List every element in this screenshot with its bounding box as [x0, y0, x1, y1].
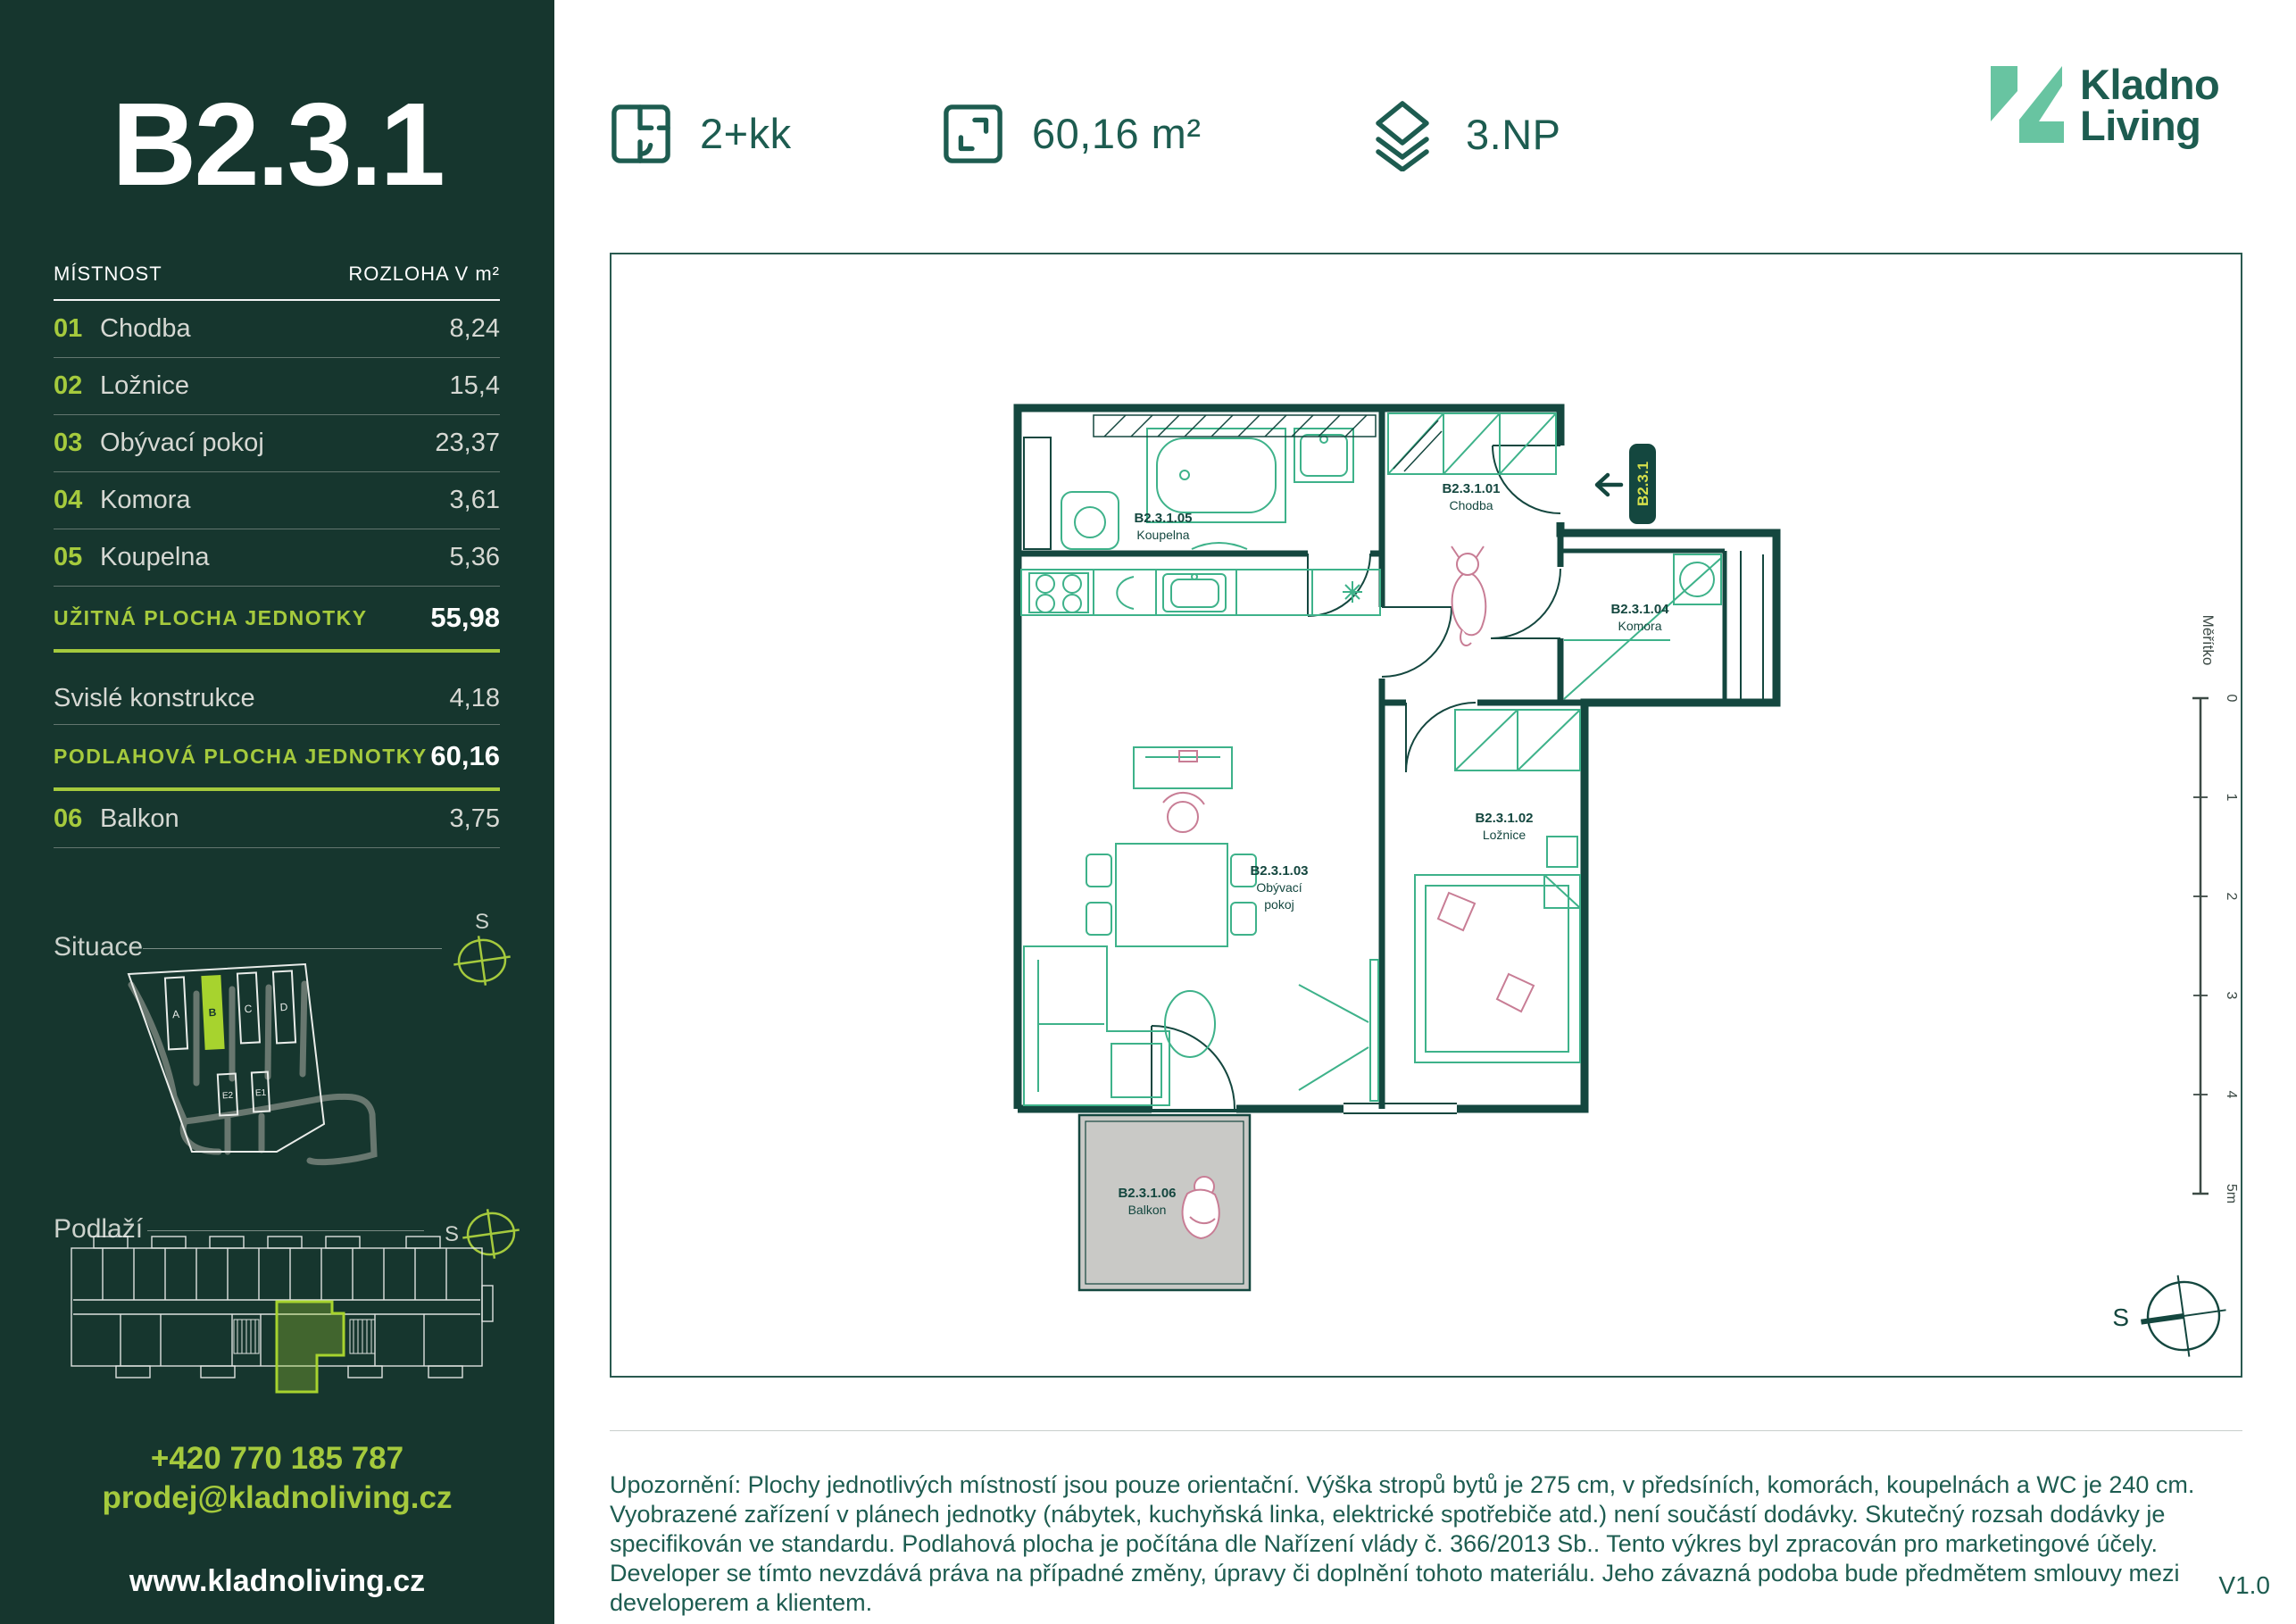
floorplan-canvas: B2.3.1.05 Koupelna B2.3.1.01 Chodba B2.3… [610, 253, 2242, 1378]
room-name: Ložnice [100, 371, 189, 401]
entrance-arrow-icon [1597, 475, 1621, 495]
table-row: 03 Obývací pokoj 23,37 [54, 415, 500, 472]
room-number: 05 [54, 543, 100, 572]
interior-walls [1018, 408, 1776, 1109]
phone-link[interactable]: +420 770 185 787 [0, 1439, 554, 1478]
room-label-name: pokoj [1264, 897, 1294, 912]
scale-ruler [2192, 698, 2209, 1194]
floor-area-label: PODLAHOVÁ PLOCHA JEDNOTKY [54, 745, 428, 769]
floor-area-value: 60,16 [430, 740, 500, 772]
compass-letter: S [475, 910, 489, 934]
room-label-code: B2.3.1.02 [1475, 811, 1533, 826]
unit-title: B2.3.1 [0, 86, 554, 204]
room-label-code: B2.3.1.04 [1610, 602, 1669, 617]
room-number: 01 [54, 314, 100, 344]
dog-figure [1452, 546, 1485, 645]
bed-pillows [1438, 893, 1534, 1012]
bathroom-hatch [1094, 415, 1376, 437]
situace-divider [143, 948, 442, 949]
col-header-area: ROZLOHA V m² [348, 262, 500, 286]
room-area: 3,61 [450, 486, 500, 515]
room-label-code: B2.3.1.01 [1442, 481, 1500, 496]
building-a-label: A [172, 1008, 180, 1020]
bathroom-shaft [1024, 437, 1051, 549]
kitchen-counter [1021, 570, 1380, 615]
layout-badge: 2+kk [611, 104, 792, 164]
room-name: Komora [100, 486, 191, 515]
brand-name-line1: Kladno [2080, 64, 2219, 105]
room-label-code: B2.3.1.03 [1250, 863, 1308, 879]
website-link[interactable]: www.kladnoliving.cz [0, 1564, 554, 1599]
email-link[interactable]: prodej@kladnoliving.cz [0, 1478, 554, 1518]
bedroom-furniture [1415, 710, 1580, 1062]
footer-divider [610, 1430, 2242, 1431]
room-area: 23,37 [435, 429, 500, 458]
plan-compass-icon: S [2112, 1270, 2232, 1362]
unit-badge: B2.3.1 [1629, 444, 1656, 524]
vertical-structures-label: Svislé konstrukce [54, 684, 255, 713]
bathroom-fixtures [1061, 429, 1353, 549]
room-name: Chodba [100, 314, 191, 344]
disclaimer-text: Upozornění: Plochy jednotlivých místnost… [610, 1470, 2252, 1618]
room-area: 3,75 [450, 804, 500, 834]
table-row: 04 Komora 3,61 [54, 472, 500, 529]
brand-logo-mark [1989, 64, 2064, 143]
vertical-structures-row: Svislé konstrukce 4,18 [54, 672, 500, 725]
hall-wardrobes [1388, 413, 1556, 474]
situace-label: Situace [54, 932, 143, 962]
room-area: 8,24 [450, 314, 500, 344]
building-e1-label: E1 [255, 1088, 267, 1099]
brand-logo-text: Kladno Living [2080, 64, 2219, 146]
brand-name-line2: Living [2080, 105, 2219, 146]
room-number: 03 [54, 429, 100, 458]
scale-labels: Měřítko 0 1 2 3 4 5m [2200, 615, 2239, 1203]
scale-title: Měřítko [2200, 615, 2217, 666]
room-name: Obývací pokoj [100, 429, 264, 458]
desk-chair-figure [1163, 751, 1204, 832]
room-number: 04 [54, 486, 100, 515]
contact-block: +420 770 185 787 prodej@kladnoliving.cz … [0, 1439, 554, 1599]
scale-tick: 5m [2224, 1184, 2239, 1203]
scale-tick: 3 [2224, 992, 2239, 1000]
compass-letter: S [2112, 1303, 2129, 1331]
sidebar: B2.3.1 MÍSTNOST ROZLOHA V m² 01 Chodba 8… [0, 0, 554, 1624]
floor-badge: 3.NP [1368, 98, 1561, 171]
area-value: 60,16 m² [1032, 104, 1201, 164]
balcony-row: 06 Balkon 3,75 [54, 791, 500, 848]
floorplan-icon [611, 104, 671, 164]
room-label-name: Koupelna [1136, 528, 1189, 542]
room-label-name: Chodba [1449, 498, 1493, 512]
brand-logo: Kladno Living [1989, 64, 2219, 146]
usable-area-row: UŽITNÁ PLOCHA JEDNOTKY 55,98 [54, 587, 500, 653]
vertical-structures-value: 4,18 [450, 684, 500, 713]
table-row: 02 Ložnice 15,4 [54, 358, 500, 415]
area-badge: 60,16 m² [943, 104, 1201, 164]
floor-value: 3.NP [1466, 104, 1561, 165]
version-label: V1.0 [2125, 1571, 2270, 1600]
room-number: 06 [54, 804, 100, 834]
building-c-label: C [244, 1003, 253, 1015]
layout-value: 2+kk [700, 104, 792, 164]
room-label-name: Ložnice [1483, 828, 1526, 842]
site-map: A B C D E2 E1 [85, 962, 469, 1221]
room-label-name: Balkon [1128, 1203, 1167, 1217]
scale-tick: 0 [2224, 695, 2239, 703]
floorplan-drawing: B2.3.1.05 Koupelna B2.3.1.01 Chodba B2.3… [611, 254, 2241, 1376]
building-b-label: B [208, 1006, 217, 1019]
exterior-walls [1018, 408, 1776, 1109]
area-icon [943, 104, 1003, 164]
room-name: Koupelna [100, 543, 210, 572]
usable-area-value: 55,98 [430, 602, 500, 634]
building-e2-label: E2 [222, 1091, 234, 1102]
highlighted-unit [277, 1302, 344, 1392]
room-label-code: B2.3.1.05 [1134, 511, 1192, 526]
floor-level-icon [1368, 98, 1437, 171]
unit-badge-label: B2.3.1 [1635, 462, 1651, 506]
floor-overview-plan [54, 1230, 500, 1409]
table-row: 05 Koupelna 5,36 [54, 529, 500, 587]
table-header: MÍSTNOST ROZLOHA V m² [54, 262, 500, 301]
floorplan-sheet: B2.3.1 MÍSTNOST ROZLOHA V m² 01 Chodba 8… [0, 0, 2296, 1624]
usable-area-label: UŽITNÁ PLOCHA JEDNOTKY [54, 606, 368, 630]
col-header-room: MÍSTNOST [54, 262, 162, 286]
room-name: Balkon [100, 804, 179, 834]
room-label-name: Obývací [1256, 880, 1302, 895]
scale-tick: 1 [2224, 794, 2239, 802]
room-area: 5,36 [450, 543, 500, 572]
shaft-lines [1741, 551, 1763, 703]
room-label-name: Komora [1618, 619, 1661, 633]
scale-tick: 4 [2224, 1091, 2239, 1099]
room-number: 02 [54, 371, 100, 401]
room-area: 15,4 [450, 371, 500, 401]
scale-tick: 2 [2224, 893, 2239, 901]
room-label-code: B2.3.1.06 [1118, 1186, 1176, 1201]
building-d-label: D [279, 1001, 288, 1013]
floor-area-row: PODLAHOVÁ PLOCHA JEDNOTKY 60,16 [54, 725, 500, 791]
room-table: MÍSTNOST ROZLOHA V m² 01 Chodba 8,24 02 … [54, 262, 500, 848]
table-row: 01 Chodba 8,24 [54, 301, 500, 358]
